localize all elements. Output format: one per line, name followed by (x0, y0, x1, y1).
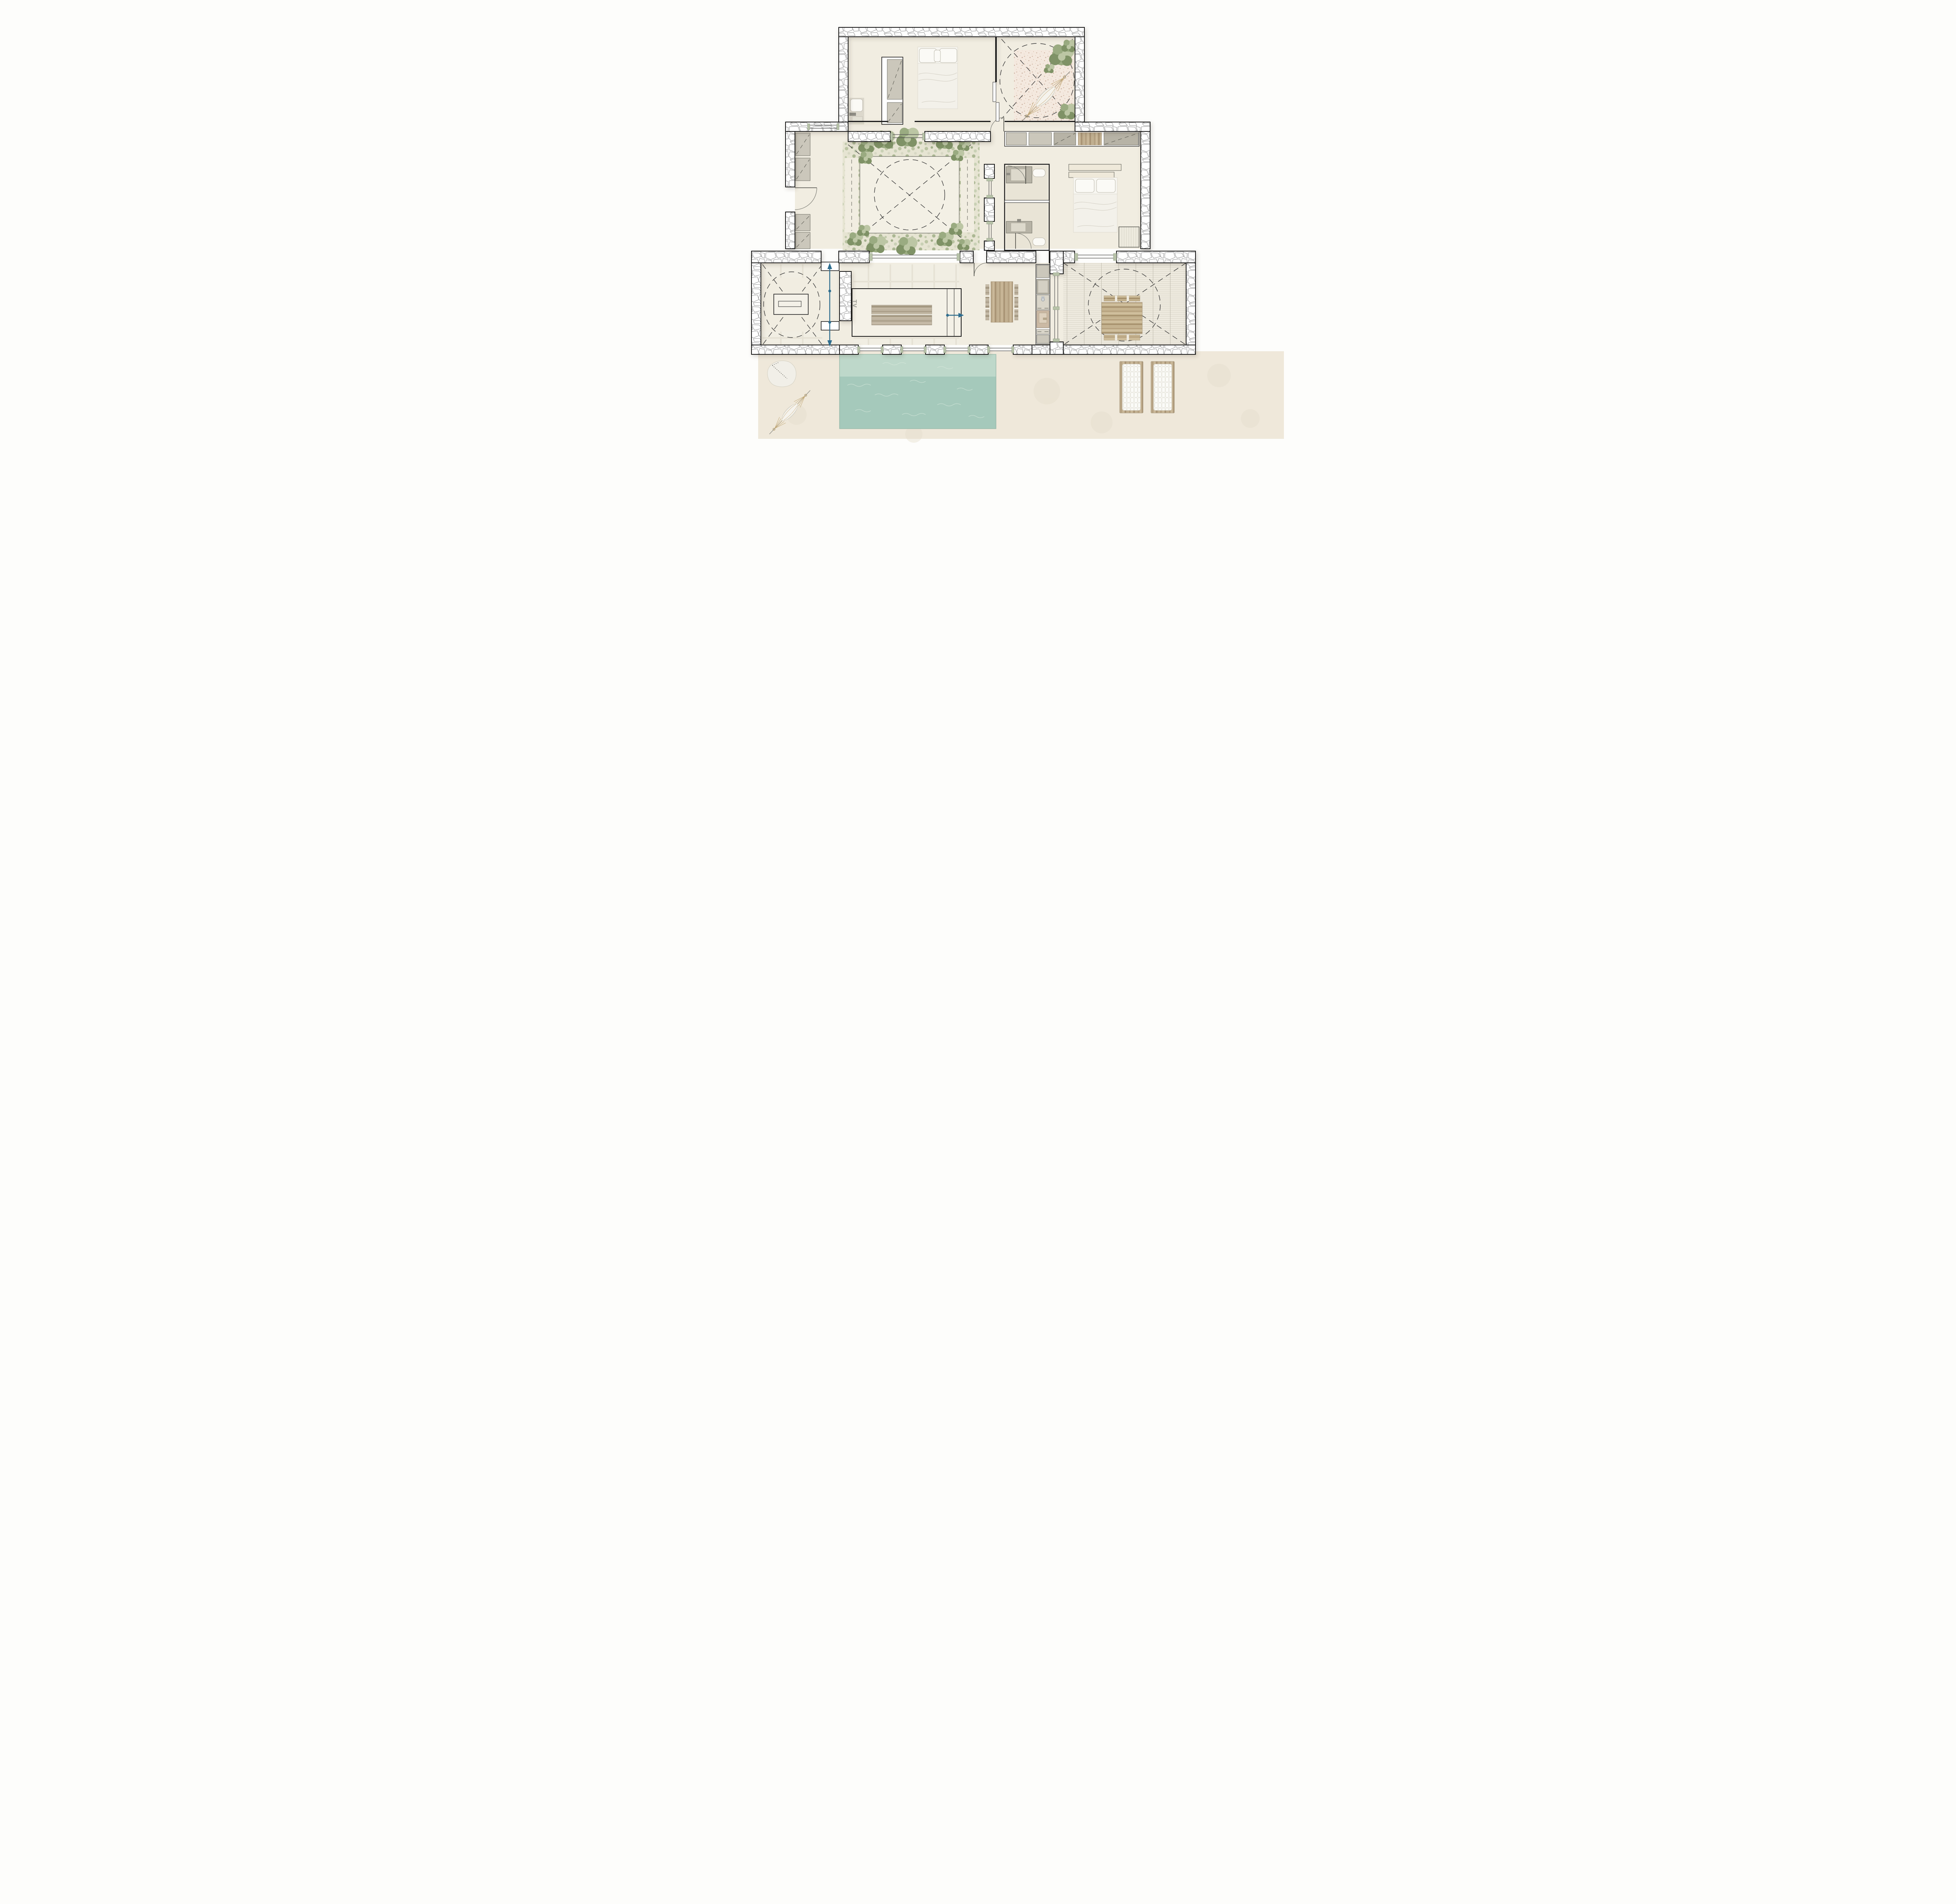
sofa-band-bottom (762, 332, 822, 345)
duvet (1073, 194, 1117, 232)
headboard-shelf (1069, 164, 1121, 171)
courtyard-paved-square (860, 156, 959, 233)
walk-in-closet (882, 57, 903, 124)
tv-label: TV (851, 300, 858, 308)
window (869, 253, 960, 260)
shower-tray (850, 99, 863, 111)
shower-bench (849, 113, 856, 116)
pillow (940, 48, 957, 63)
pillow (1097, 179, 1115, 192)
sofa-band-top (762, 264, 822, 278)
wood-bench (872, 315, 932, 325)
outdoor-bench (1104, 335, 1140, 340)
wood-panel (1078, 133, 1102, 145)
sofa-pavers-top (854, 264, 959, 289)
central-courtyard (843, 128, 980, 255)
kitchen-cabinet (1037, 335, 1049, 343)
closet-row (1005, 131, 1139, 146)
pillow (919, 48, 937, 63)
pillow (1075, 179, 1094, 192)
beach-terrain (758, 351, 1284, 443)
appliance-face (1038, 281, 1048, 293)
kitchen-cabinet (1037, 265, 1049, 278)
outdoor-bench (1104, 296, 1140, 301)
sunken-living-room (852, 264, 961, 345)
pool-shallow-shelf (840, 354, 996, 376)
sun-lounger (1120, 361, 1143, 413)
stone-sink (1037, 311, 1049, 328)
tap (1006, 173, 1010, 175)
sand-area (758, 351, 1284, 439)
sliding-door (993, 82, 996, 102)
sun-lounger (1151, 361, 1174, 413)
dining-table (991, 282, 1013, 322)
terrace (1063, 263, 1186, 345)
pillow-small (934, 50, 940, 62)
sofa-pavers-bottom (854, 337, 959, 345)
window (1075, 253, 1116, 260)
kitchen-strip (1036, 264, 1050, 352)
bed (918, 47, 958, 109)
headboard (1069, 172, 1114, 178)
toilet (1033, 238, 1045, 246)
swimming-pool (840, 354, 996, 429)
low-table (774, 294, 808, 314)
floor-mat (1119, 227, 1139, 247)
shower-zone (849, 98, 864, 124)
toilet (1033, 169, 1045, 177)
sliding-door (996, 102, 999, 121)
bed (1069, 164, 1121, 232)
wood-bench (872, 305, 932, 314)
pouf (768, 361, 796, 387)
outdoor-table-set (1102, 296, 1142, 340)
villa-floor-plan: TV (671, 0, 1285, 456)
outdoor-table (1102, 302, 1142, 334)
tap (1017, 219, 1021, 222)
basin (1011, 223, 1026, 232)
floor-plan-canvas: TV (671, 0, 1285, 456)
kitchen-sink-faucet (1037, 295, 1049, 310)
bathroom-divider-wall (1005, 200, 1049, 203)
